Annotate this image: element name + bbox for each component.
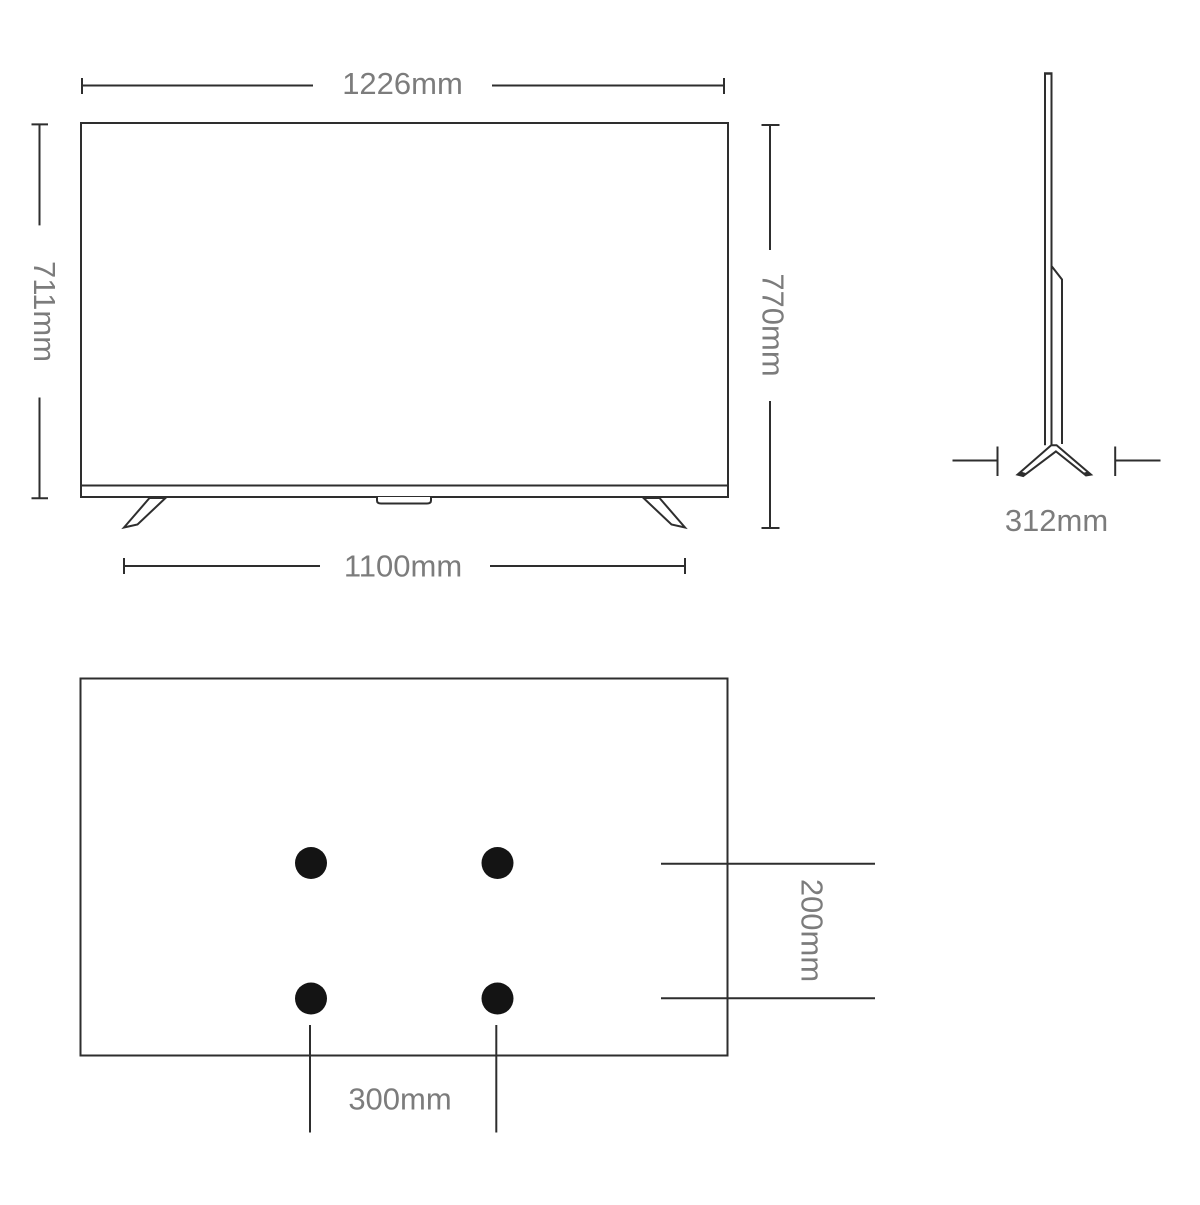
svg-text:770mm: 770mm — [756, 273, 791, 376]
svg-text:312mm: 312mm — [1005, 503, 1108, 538]
svg-text:711mm: 711mm — [27, 261, 62, 362]
svg-text:1226mm: 1226mm — [342, 66, 463, 101]
svg-text:300mm: 300mm — [348, 1082, 451, 1117]
svg-text:200mm: 200mm — [795, 879, 830, 982]
svg-text:1100mm: 1100mm — [344, 549, 462, 584]
